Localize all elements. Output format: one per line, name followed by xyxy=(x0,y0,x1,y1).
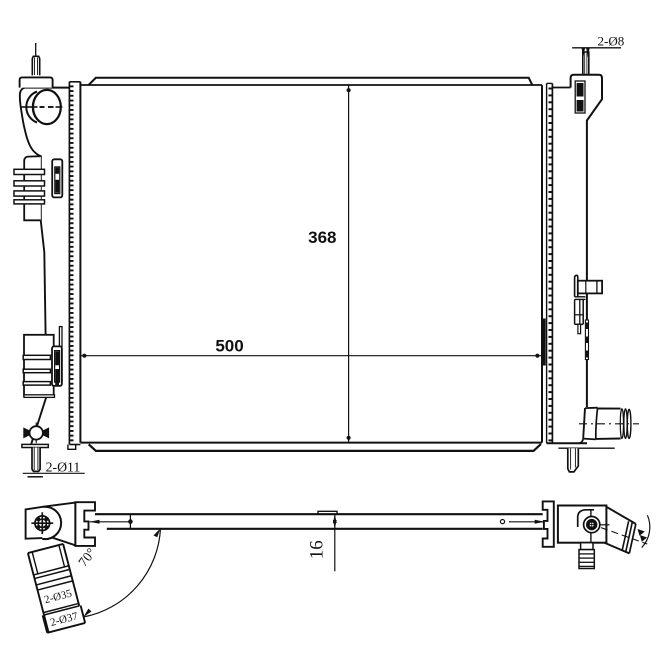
svg-text:368: 368 xyxy=(308,228,336,247)
svg-text:2-Ø11: 2-Ø11 xyxy=(46,459,81,474)
svg-text:500: 500 xyxy=(215,337,243,356)
svg-text:16: 16 xyxy=(307,540,328,559)
svg-text:2-Ø8: 2-Ø8 xyxy=(598,34,625,49)
